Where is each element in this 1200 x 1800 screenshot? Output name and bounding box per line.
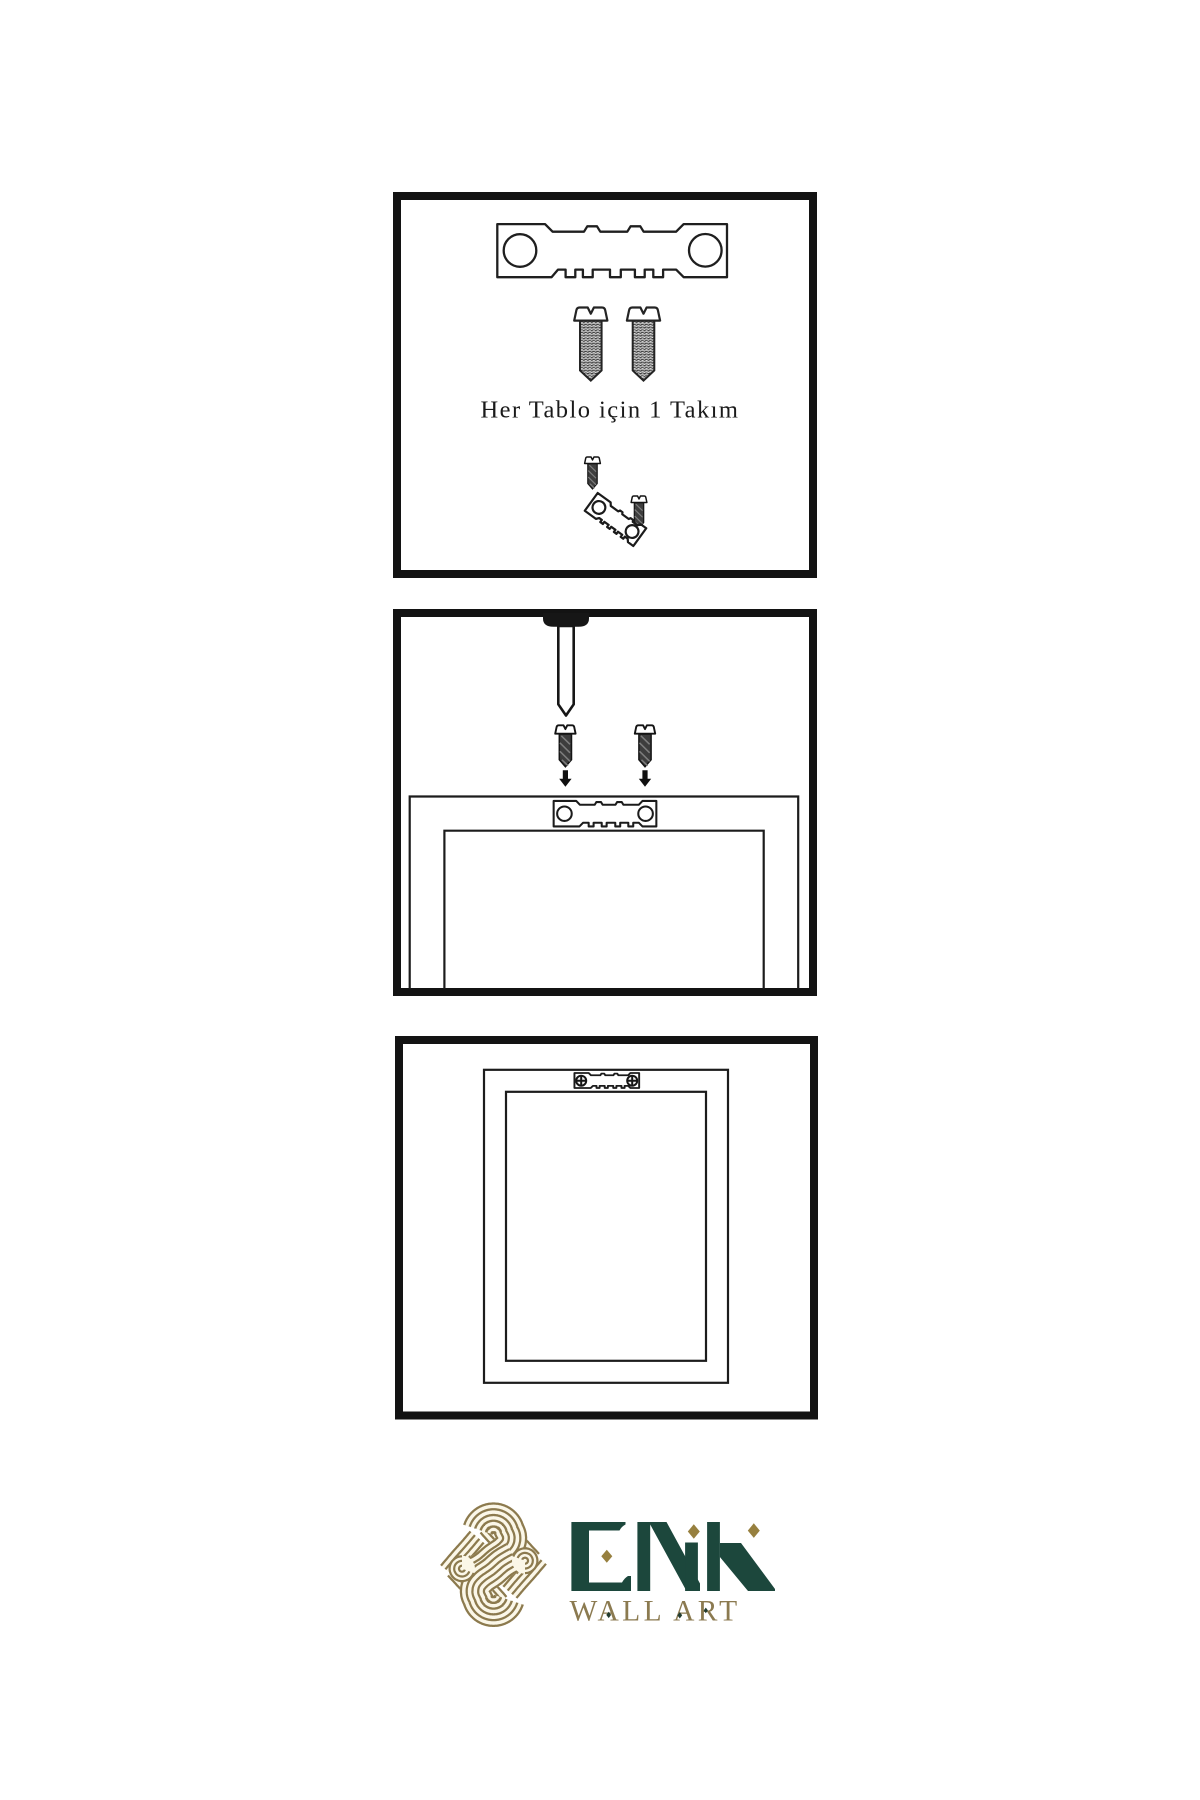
svg-text:WALL ART: WALL ART [570,1596,741,1628]
svg-text:Her Tablo için 1 Takım: Her Tablo için 1 Takım [481,397,740,424]
